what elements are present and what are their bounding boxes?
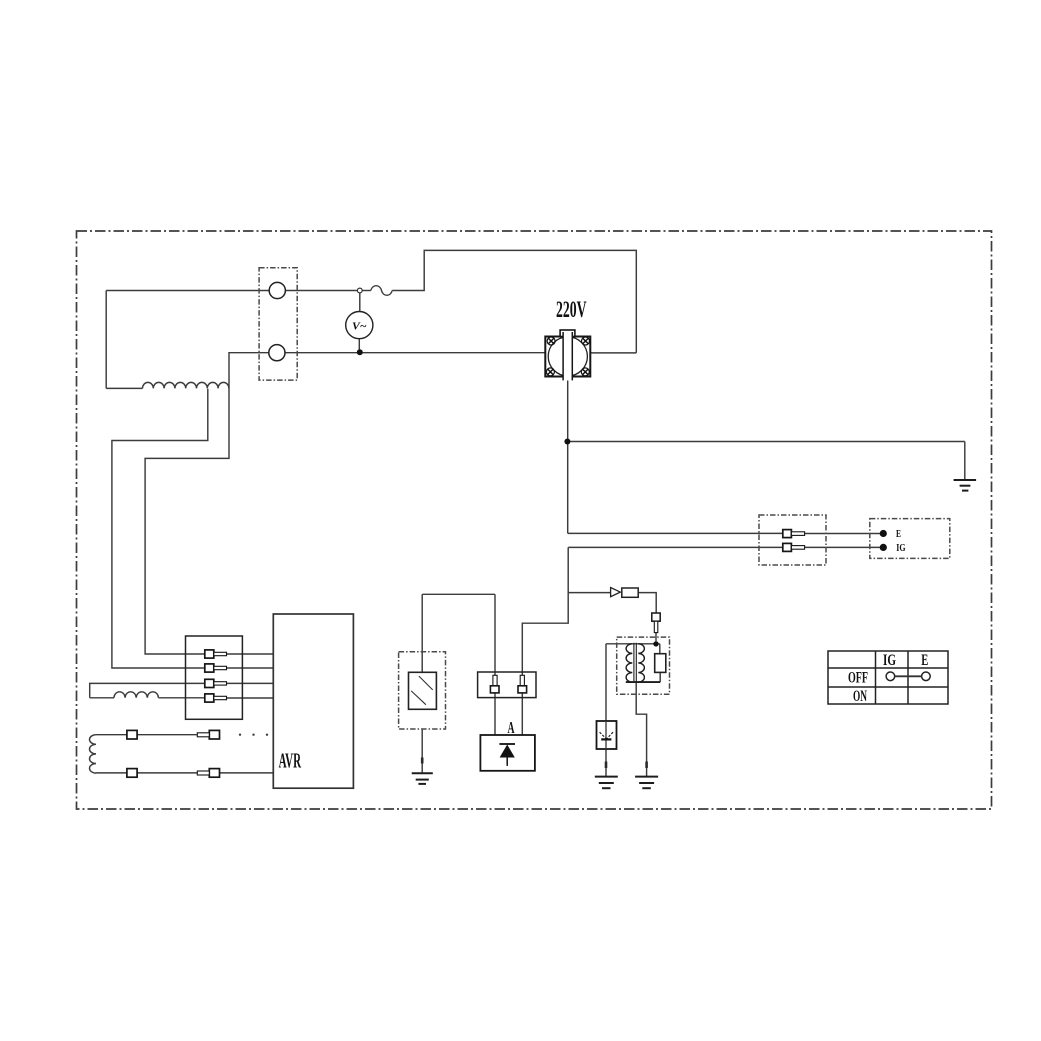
svg-text:IG: IG (883, 652, 896, 669)
svg-text:V~: V~ (352, 321, 367, 333)
svg-text:OFF: OFF (848, 669, 868, 686)
svg-text:E: E (896, 529, 901, 540)
svg-text:IG: IG (896, 543, 905, 554)
svg-text:ON: ON (853, 688, 867, 705)
svg-text:E: E (921, 652, 928, 669)
svg-text:A: A (508, 718, 515, 737)
svg-text:AVR: AVR (279, 749, 302, 773)
svg-text:220V: 220V (556, 297, 587, 322)
